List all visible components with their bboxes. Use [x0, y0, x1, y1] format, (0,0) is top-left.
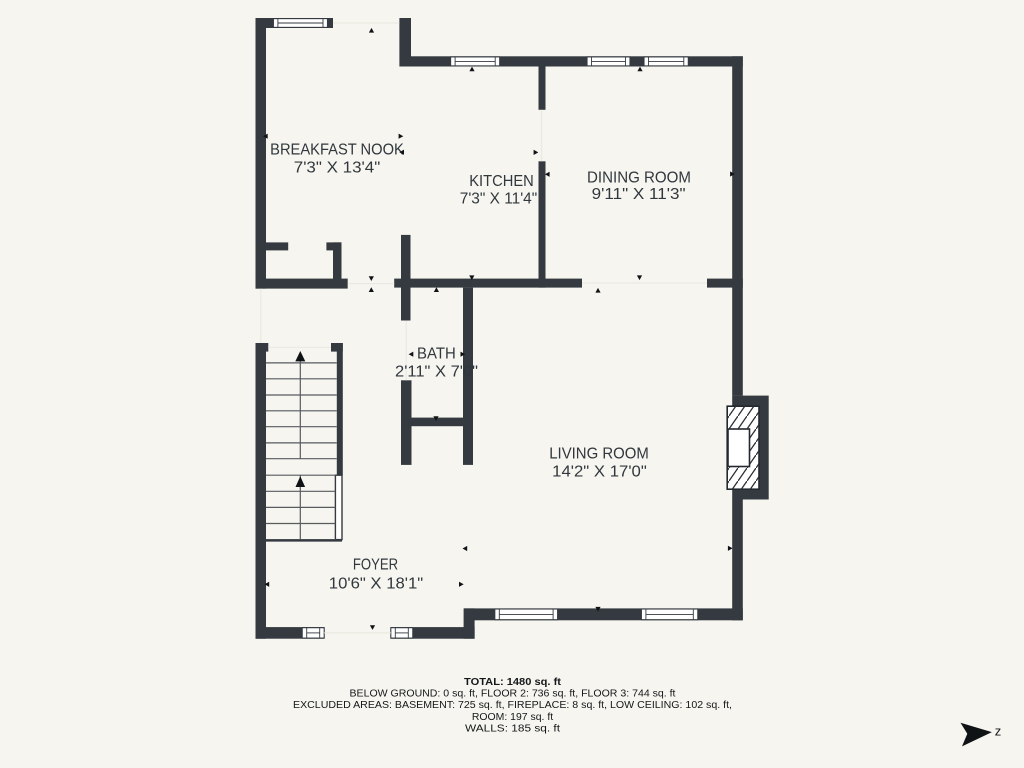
svg-text:9'11" X 11'3": 9'11" X 11'3": [592, 186, 686, 203]
svg-text:KITCHEN: KITCHEN: [469, 173, 534, 190]
svg-text:BELOW GROUND: 0 sq. ft, FLOOR: BELOW GROUND: 0 sq. ft, FLOOR 2: 736 sq.…: [350, 689, 676, 700]
svg-text:FOYER: FOYER: [353, 557, 398, 574]
svg-text:ROOM: 197 sq. ft: ROOM: 197 sq. ft: [472, 712, 554, 723]
svg-text:10'6" X 18'1": 10'6" X 18'1": [329, 576, 423, 593]
svg-text:DINING ROOM: DINING ROOM: [587, 169, 691, 186]
svg-text:z: z: [995, 724, 1002, 739]
svg-text:BATH: BATH: [417, 345, 456, 362]
svg-text:LIVING ROOM: LIVING ROOM: [549, 446, 649, 463]
svg-text:2'11" X 7'0": 2'11" X 7'0": [395, 364, 478, 381]
svg-text:TOTAL: 1480 sq. ft: TOTAL: 1480 sq. ft: [464, 677, 562, 688]
svg-text:EXCLUDED AREAS: BASEMENT: 725: EXCLUDED AREAS: BASEMENT: 725 sq. ft, FI…: [293, 700, 732, 711]
svg-text:BREAKFAST NOOK: BREAKFAST NOOK: [270, 142, 404, 159]
svg-text:7'3" X 13'4": 7'3" X 13'4": [294, 160, 381, 177]
svg-text:WALLS: 185 sq. ft: WALLS: 185 sq. ft: [465, 724, 560, 735]
svg-text:14'2" X 17'0": 14'2" X 17'0": [552, 464, 647, 481]
svg-text:7'3" X 11'4": 7'3" X 11'4": [460, 190, 538, 207]
